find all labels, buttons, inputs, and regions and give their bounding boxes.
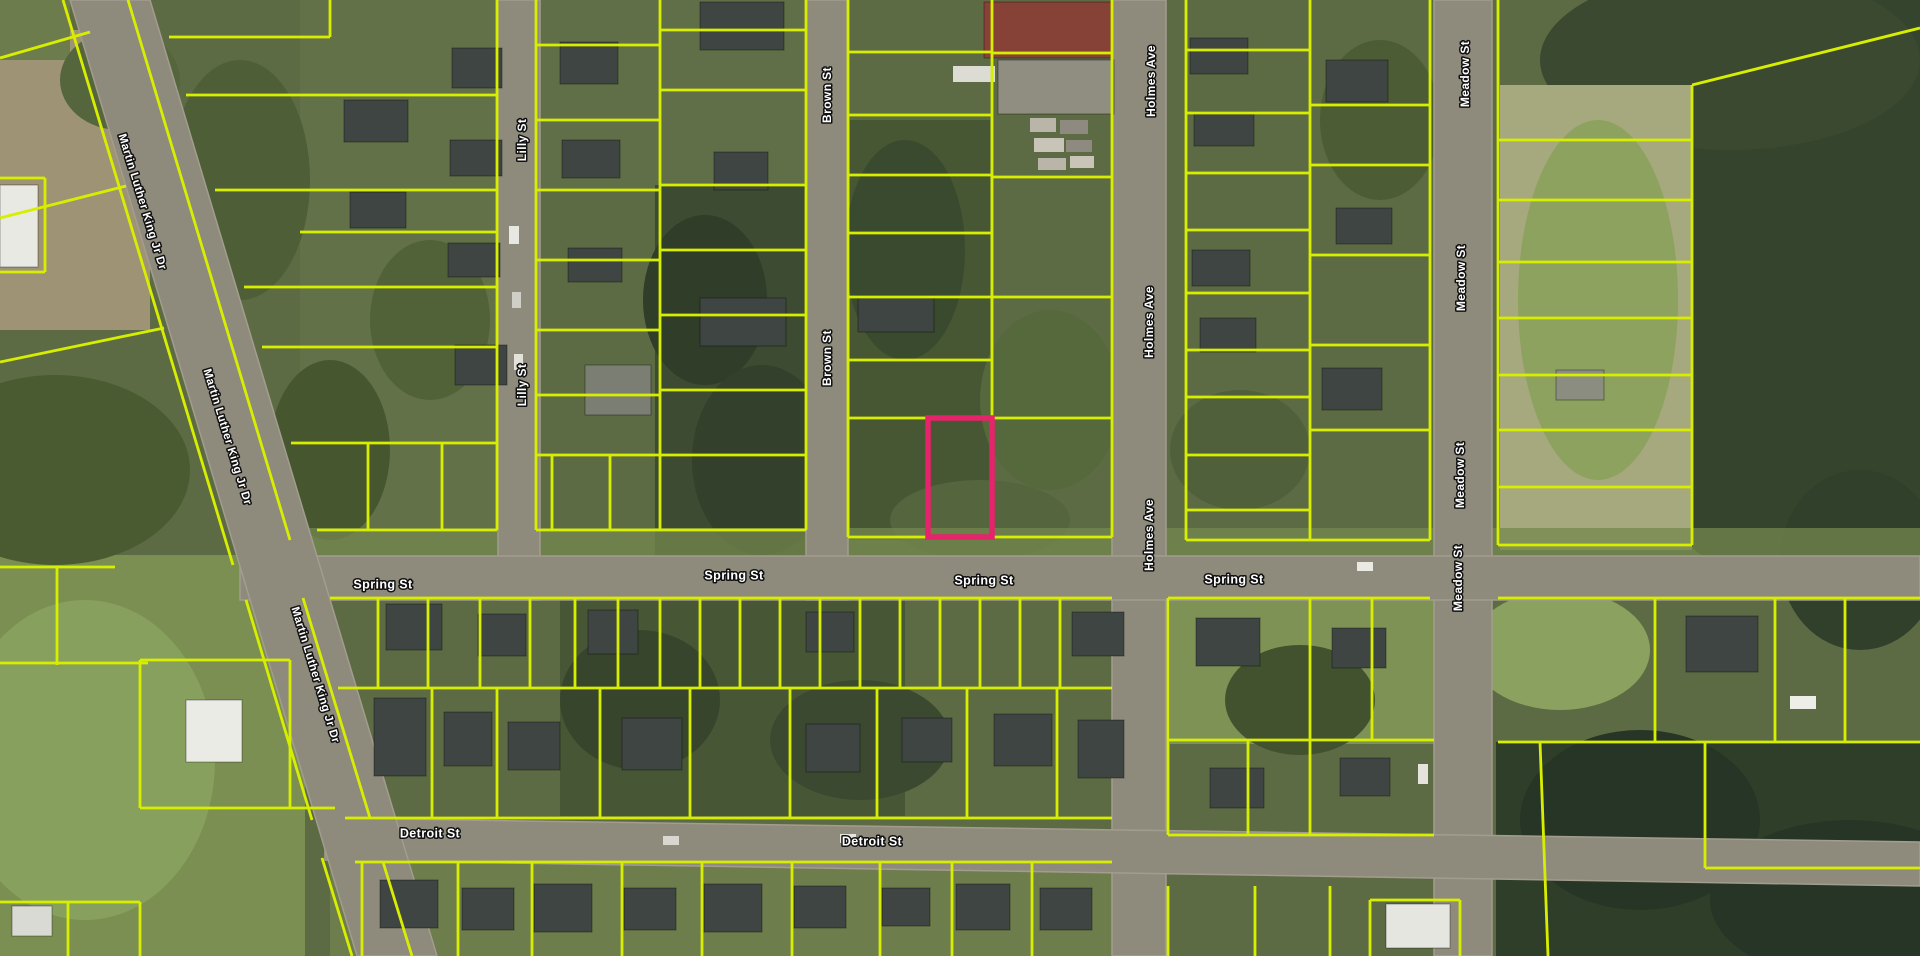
vegetation-patch	[1470, 590, 1650, 710]
street-label: Brown St	[820, 67, 834, 123]
building	[902, 718, 952, 762]
building	[806, 612, 854, 652]
building	[450, 140, 502, 176]
building	[1686, 616, 1758, 672]
building	[585, 365, 651, 415]
building	[1386, 904, 1450, 948]
building	[560, 42, 618, 84]
vehicle	[1357, 562, 1373, 571]
street-label: Spring St	[1204, 572, 1264, 586]
building	[462, 888, 514, 930]
building	[1190, 38, 1248, 74]
building	[380, 880, 438, 928]
vehicle	[1418, 764, 1428, 784]
satellite-parcel-map[interactable]: Martin Luther King Jr DrMartin Luther Ki…	[0, 0, 1920, 956]
street-label: Holmes Ave	[1142, 286, 1156, 358]
road-holmes-ave	[1112, 0, 1166, 956]
building	[588, 610, 638, 654]
vegetation-patch	[0, 0, 70, 60]
vehicle	[509, 226, 519, 244]
building	[186, 700, 242, 762]
building	[568, 248, 622, 282]
street-label: Holmes Ave	[1144, 45, 1158, 117]
building	[1322, 368, 1382, 410]
building	[534, 884, 592, 932]
street-label: Detroit St	[400, 826, 461, 840]
vehicle	[512, 292, 521, 308]
building	[478, 614, 526, 656]
vehicle	[663, 836, 679, 845]
road-spring-st	[240, 556, 1920, 600]
building	[1196, 618, 1260, 666]
building	[1194, 112, 1254, 146]
vehicle	[953, 66, 995, 82]
street-label: Brown St	[820, 330, 834, 386]
building	[452, 48, 502, 88]
building	[350, 192, 406, 228]
vehicle	[1034, 138, 1064, 152]
building	[0, 185, 38, 267]
vehicle	[1070, 156, 1094, 168]
vegetation-patch	[240, 528, 1920, 556]
building	[806, 724, 860, 772]
building	[1336, 208, 1392, 244]
street-label: Lilly St	[515, 364, 529, 407]
building	[444, 712, 492, 766]
building	[374, 698, 426, 776]
building	[622, 718, 682, 770]
building	[1078, 720, 1124, 778]
building	[1326, 60, 1388, 102]
building	[624, 888, 676, 930]
building	[344, 100, 408, 142]
street-label: Spring St	[954, 573, 1014, 587]
building	[994, 714, 1052, 766]
vehicle	[1790, 696, 1816, 709]
street-label: Detroit St	[842, 834, 903, 848]
building	[1072, 612, 1124, 656]
building	[455, 345, 507, 385]
building	[1210, 768, 1264, 808]
building	[882, 888, 930, 926]
vehicle	[1066, 140, 1092, 152]
street-label: Meadow St	[1451, 545, 1465, 611]
vehicle	[1038, 158, 1066, 170]
street-label: Meadow St	[1458, 41, 1472, 107]
vehicle	[1060, 120, 1088, 134]
building	[984, 2, 1112, 58]
street-label: Holmes Ave	[1142, 499, 1156, 571]
building	[794, 886, 846, 928]
building	[704, 884, 762, 932]
building	[1332, 628, 1386, 668]
building	[956, 884, 1010, 930]
building	[700, 2, 784, 50]
building	[448, 243, 500, 277]
building	[1192, 250, 1250, 286]
street-label: Spring St	[353, 577, 413, 591]
vehicle	[1030, 118, 1056, 132]
street-label: Meadow St	[1453, 442, 1467, 508]
building	[386, 604, 442, 650]
building	[1200, 318, 1256, 352]
building	[1340, 758, 1390, 796]
map-canvas[interactable]: Martin Luther King Jr DrMartin Luther Ki…	[0, 0, 1920, 956]
street-label: Lilly St	[515, 119, 529, 162]
building	[508, 722, 560, 770]
vegetation-patch	[980, 310, 1120, 490]
street-label: Meadow St	[1454, 245, 1468, 311]
building	[998, 60, 1114, 114]
building	[562, 140, 620, 178]
vegetation-patch	[1170, 390, 1310, 510]
vegetation-patch	[1518, 120, 1678, 480]
building	[858, 296, 934, 332]
building	[12, 906, 52, 936]
street-label: Spring St	[704, 568, 764, 582]
building	[1040, 888, 1092, 930]
building	[700, 298, 786, 346]
